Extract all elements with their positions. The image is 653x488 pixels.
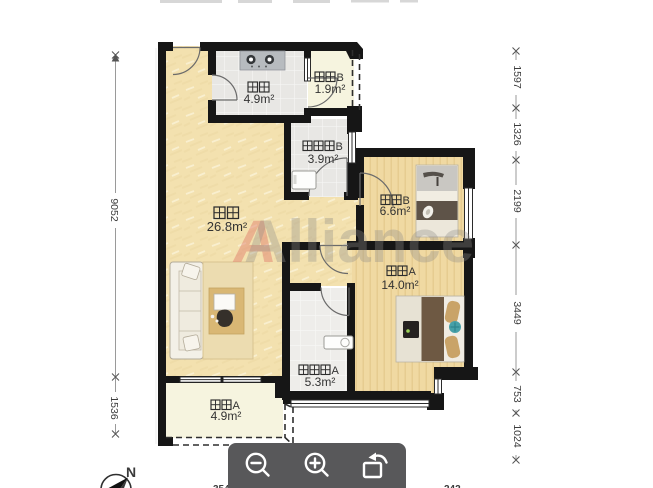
svg-text:2199: 2199 xyxy=(511,189,523,213)
svg-text:1.9m²: 1.9m² xyxy=(315,82,346,96)
svg-text:4.9m²: 4.9m² xyxy=(211,409,242,423)
svg-text:6.6m²: 6.6m² xyxy=(380,204,411,218)
svg-text:A: A xyxy=(409,266,417,278)
svg-text:1536: 1536 xyxy=(108,396,120,420)
svg-text:5.3m²: 5.3m² xyxy=(305,375,336,389)
svg-text:4.9m²: 4.9m² xyxy=(244,92,275,106)
svg-text:242: 242 xyxy=(444,484,461,488)
svg-text:9052: 9052 xyxy=(108,198,120,222)
svg-text:Alliance: Alliance xyxy=(244,208,474,275)
svg-text:14.0m²: 14.0m² xyxy=(381,278,418,292)
svg-text:26.8m²: 26.8m² xyxy=(207,219,248,234)
svg-text:1597: 1597 xyxy=(511,65,523,89)
svg-text:1024: 1024 xyxy=(511,424,523,448)
svg-text:1326: 1326 xyxy=(511,122,523,146)
svg-text:3449: 3449 xyxy=(511,301,523,325)
svg-text:N: N xyxy=(126,464,136,480)
svg-text:753: 753 xyxy=(511,385,523,403)
svg-text:3.9m²: 3.9m² xyxy=(308,152,339,166)
